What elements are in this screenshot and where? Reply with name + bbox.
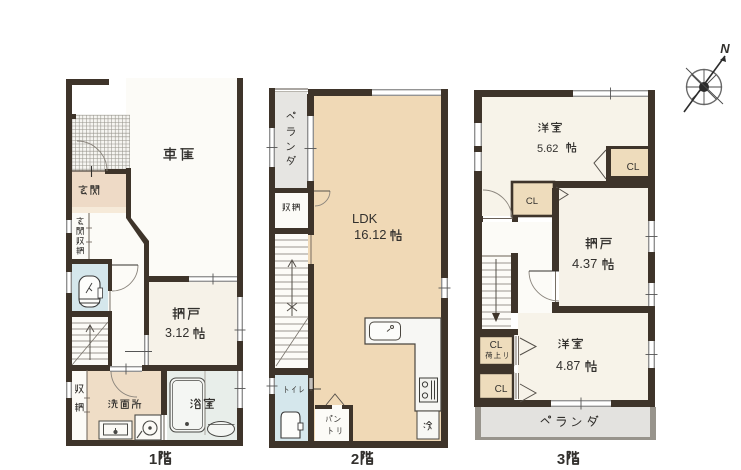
svg-text:3: 3 xyxy=(557,451,565,465)
svg-text:N: N xyxy=(720,41,730,56)
svg-text:LDK: LDK xyxy=(352,211,378,226)
svg-text:3.12: 3.12 xyxy=(165,326,189,340)
svg-text:CL: CL xyxy=(627,162,640,173)
svg-text:16.12: 16.12 xyxy=(354,227,387,242)
svg-text:1: 1 xyxy=(149,451,157,465)
svg-text:5.62: 5.62 xyxy=(537,143,558,155)
svg-text:4.37: 4.37 xyxy=(572,256,597,271)
svg-text:4.87: 4.87 xyxy=(556,359,580,373)
svg-text:2: 2 xyxy=(351,451,359,465)
svg-text:CL: CL xyxy=(490,340,503,351)
svg-text:CL: CL xyxy=(495,384,508,395)
svg-text:CL: CL xyxy=(526,196,538,207)
